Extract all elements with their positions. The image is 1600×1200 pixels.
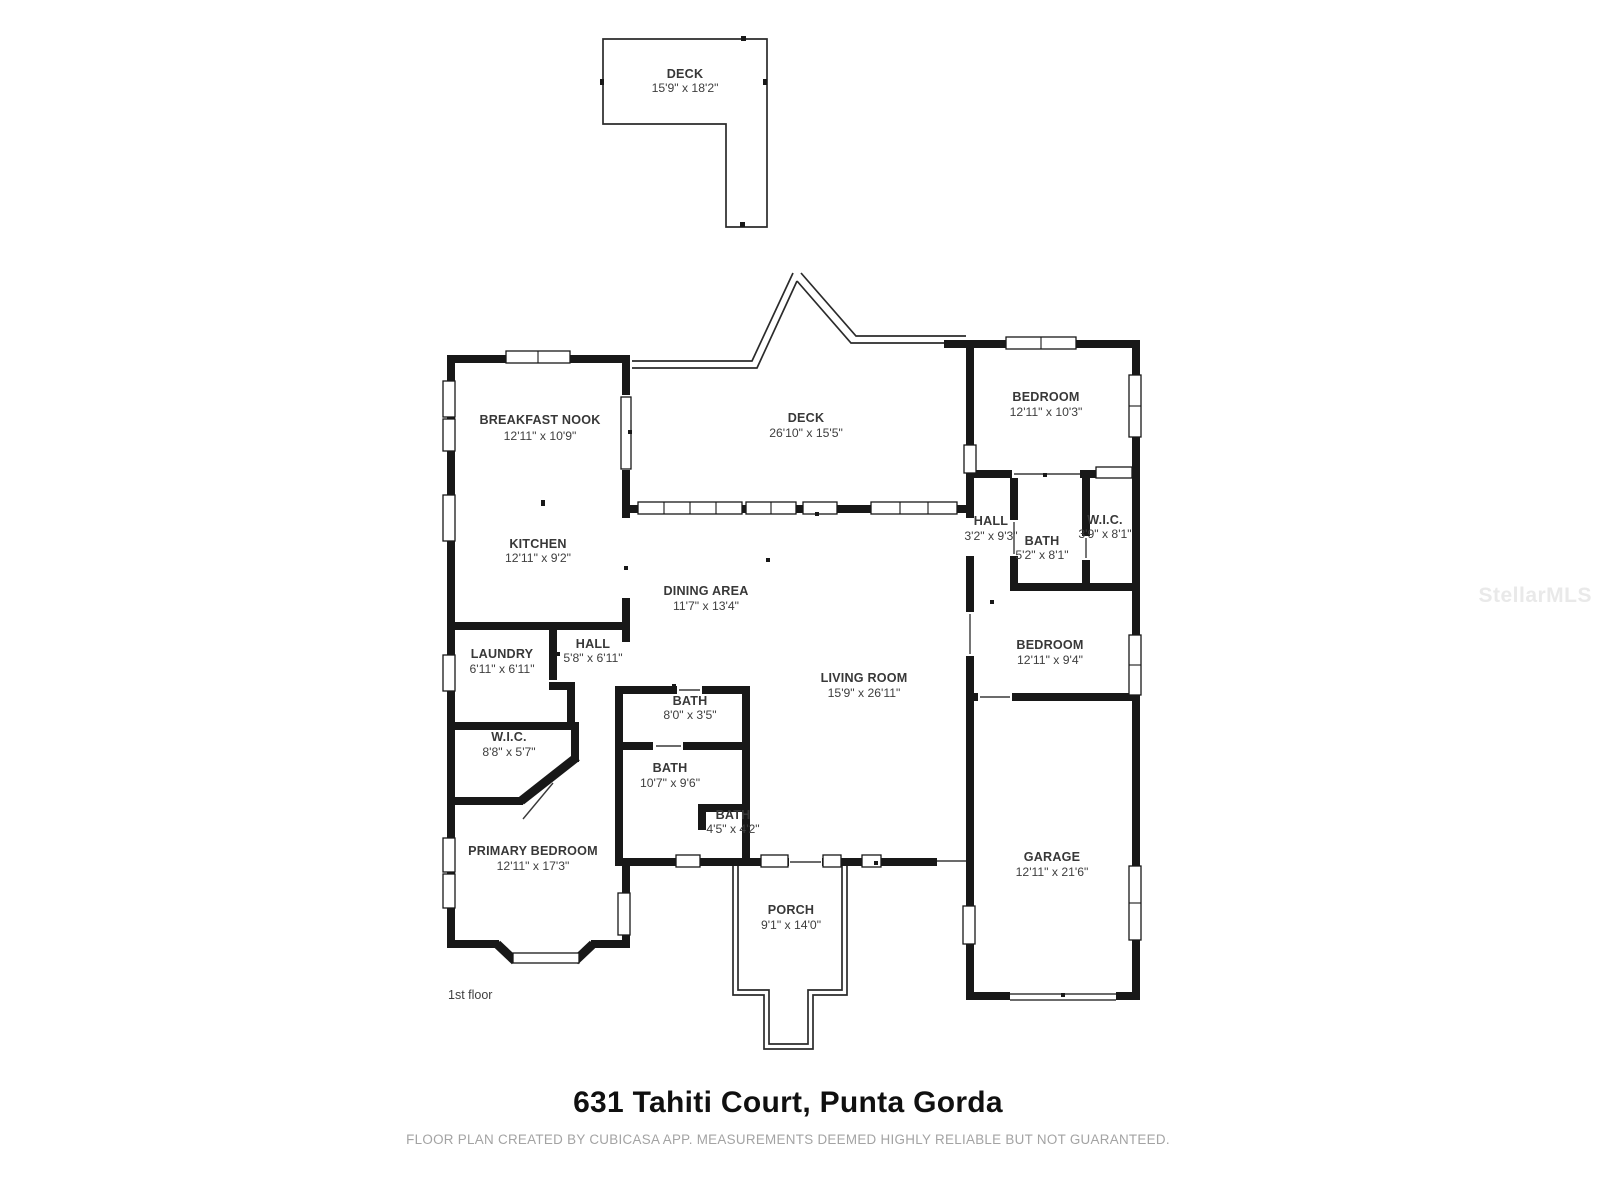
- wall: [1116, 992, 1140, 1000]
- tick: [541, 500, 545, 506]
- annotations: 1st floor 631 Tahiti Court, Punta Gorda …: [406, 584, 1592, 1147]
- wall: [698, 804, 706, 830]
- tick: [672, 684, 676, 688]
- wall: [966, 340, 974, 447]
- porch-outline-outer: [733, 866, 847, 1049]
- room-dims-porch: 9'1" x 14'0": [761, 918, 821, 932]
- room-label-dining-area: DINING AREA: [664, 584, 749, 598]
- wall: [447, 722, 579, 730]
- room-label-garage: GARAGE: [1024, 850, 1080, 864]
- window: [761, 855, 788, 867]
- room-label-porch: PORCH: [768, 903, 814, 917]
- window: [443, 838, 455, 872]
- window: [862, 855, 881, 867]
- disclaimer-text: FLOOR PLAN CREATED BY CUBICASA APP. MEAS…: [406, 1132, 1170, 1147]
- sliding-door: [871, 502, 957, 514]
- stellar-mls-watermark: StellarMLS: [1478, 584, 1592, 607]
- room-labels: DECK 15'9" x 18'2" BREAKFAST NOOK 12'11"…: [468, 67, 1131, 932]
- floor-label: 1st floor: [448, 988, 492, 1002]
- room-label-primary-bedroom: PRIMARY BEDROOM: [468, 844, 598, 858]
- window: [443, 495, 455, 541]
- window: [1096, 467, 1132, 478]
- mid-deck-rail-left: [632, 273, 793, 361]
- room-dims-deck-upper: 15'9" x 18'2": [652, 81, 719, 95]
- room-label-bath-center: BATH: [673, 694, 708, 708]
- wall: [557, 622, 630, 630]
- floor-plan-canvas: DECK 15'9" x 18'2" BREAKFAST NOOK 12'11"…: [0, 0, 1600, 1200]
- tick: [600, 79, 604, 85]
- wall: [615, 686, 623, 750]
- tick: [815, 512, 819, 516]
- wall: [447, 622, 549, 630]
- wall: [622, 598, 630, 642]
- tick: [763, 79, 767, 85]
- room-label-wic-east: W.I.C.: [1087, 513, 1122, 527]
- room-dims-deck-main: 26'10" x 15'5": [769, 426, 843, 440]
- room-label-deck-upper: DECK: [667, 67, 703, 81]
- wall: [966, 556, 974, 612]
- room-label-bath-small: BATH: [716, 808, 751, 822]
- window: [443, 381, 455, 417]
- floor-plan-page: DECK 15'9" x 18'2" BREAKFAST NOOK 12'11"…: [0, 0, 1600, 1200]
- room-label-bedroom-e: BEDROOM: [1016, 638, 1083, 652]
- wall: [549, 622, 557, 680]
- wall: [742, 686, 750, 750]
- tick: [741, 36, 746, 41]
- room-dims-bath-main: 10'7" x 9'6": [640, 776, 700, 790]
- tick: [766, 558, 770, 562]
- room-label-living-room: LIVING ROOM: [821, 671, 908, 685]
- window: [443, 419, 455, 451]
- bay-window: [513, 953, 579, 963]
- tick: [969, 408, 973, 412]
- room-label-hall-west: HALL: [576, 637, 610, 651]
- wall: [1010, 583, 1140, 591]
- wall: [683, 742, 750, 750]
- window: [618, 893, 630, 935]
- room-dims-dining-area: 11'7" x 13'4": [673, 599, 739, 613]
- mid-deck-rail-right-inner: [797, 281, 966, 343]
- tick: [624, 566, 628, 570]
- room-dims-primary-bedroom: 12'11" x 17'3": [497, 859, 570, 873]
- deck-outlines: [603, 39, 966, 1049]
- tick: [628, 430, 632, 434]
- wall: [591, 940, 630, 948]
- room-dims-bath-small: 4'5" x 4'2": [706, 822, 759, 836]
- room-dims-garage: 12'11" x 21'6": [1016, 865, 1089, 879]
- wall: [447, 940, 499, 948]
- wall: [615, 742, 623, 866]
- sliding-door: [964, 445, 976, 473]
- tick: [1061, 993, 1065, 997]
- room-dims-kitchen: 12'11" x 9'2": [505, 551, 571, 565]
- wall: [447, 797, 523, 805]
- room-label-bath-east: BATH: [1025, 534, 1060, 548]
- wall: [615, 686, 677, 694]
- room-dims-wic-east: 3'9" x 8'1": [1078, 527, 1131, 541]
- wall: [966, 474, 974, 518]
- window: [676, 855, 700, 867]
- room-dims-hall-west: 5'8" x 6'11": [563, 651, 622, 665]
- page-title: 631 Tahiti Court, Punta Gorda: [573, 1086, 1003, 1119]
- tick: [874, 861, 878, 865]
- room-label-wic-west: W.I.C.: [491, 730, 526, 744]
- room-dims-living-room: 15'9" x 26'11": [828, 686, 901, 700]
- wall: [1012, 693, 1140, 701]
- window: [443, 874, 455, 908]
- room-dims-wic-west: 8'8" x 5'7": [482, 745, 535, 759]
- window: [443, 655, 455, 691]
- tick: [556, 652, 560, 656]
- room-dims-bedroom-e: 12'11" x 9'4": [1017, 653, 1083, 667]
- window: [963, 906, 975, 944]
- room-dims-bath-center: 8'0" x 3'5": [663, 708, 716, 722]
- window: [803, 502, 837, 514]
- wall: [622, 355, 630, 395]
- window: [823, 855, 841, 867]
- room-dims-bath-east: 5'2" x 8'1": [1015, 548, 1068, 562]
- tick: [1043, 473, 1047, 477]
- room-label-bath-main: BATH: [653, 761, 688, 775]
- room-label-hall-east: HALL: [974, 514, 1008, 528]
- wall-diagonal: [497, 944, 515, 961]
- mid-deck-rail-right: [801, 273, 966, 336]
- room-dims-hall-east: 3'2" x 9'3": [964, 529, 1017, 543]
- wall: [966, 992, 1010, 1000]
- wall-diagonal: [521, 757, 577, 801]
- tick: [990, 600, 994, 604]
- room-label-bedroom-ne: BEDROOM: [1012, 390, 1079, 404]
- room-dims-breakfast-nook: 12'11" x 10'9": [504, 429, 577, 443]
- room-label-laundry: LAUNDRY: [471, 647, 534, 661]
- room-label-kitchen: KITCHEN: [509, 537, 566, 551]
- wall: [1010, 478, 1018, 520]
- mid-deck-rail-left-inner: [632, 281, 797, 368]
- room-label-deck-main: DECK: [788, 411, 824, 425]
- porch-outline-inner: [738, 866, 842, 1044]
- room-dims-laundry: 6'11" x 6'11": [469, 662, 534, 676]
- tick: [740, 222, 745, 227]
- room-dims-bedroom-ne: 12'11" x 10'3": [1010, 405, 1083, 419]
- wall: [966, 693, 974, 1000]
- room-label-breakfast-nook: BREAKFAST NOOK: [479, 413, 600, 427]
